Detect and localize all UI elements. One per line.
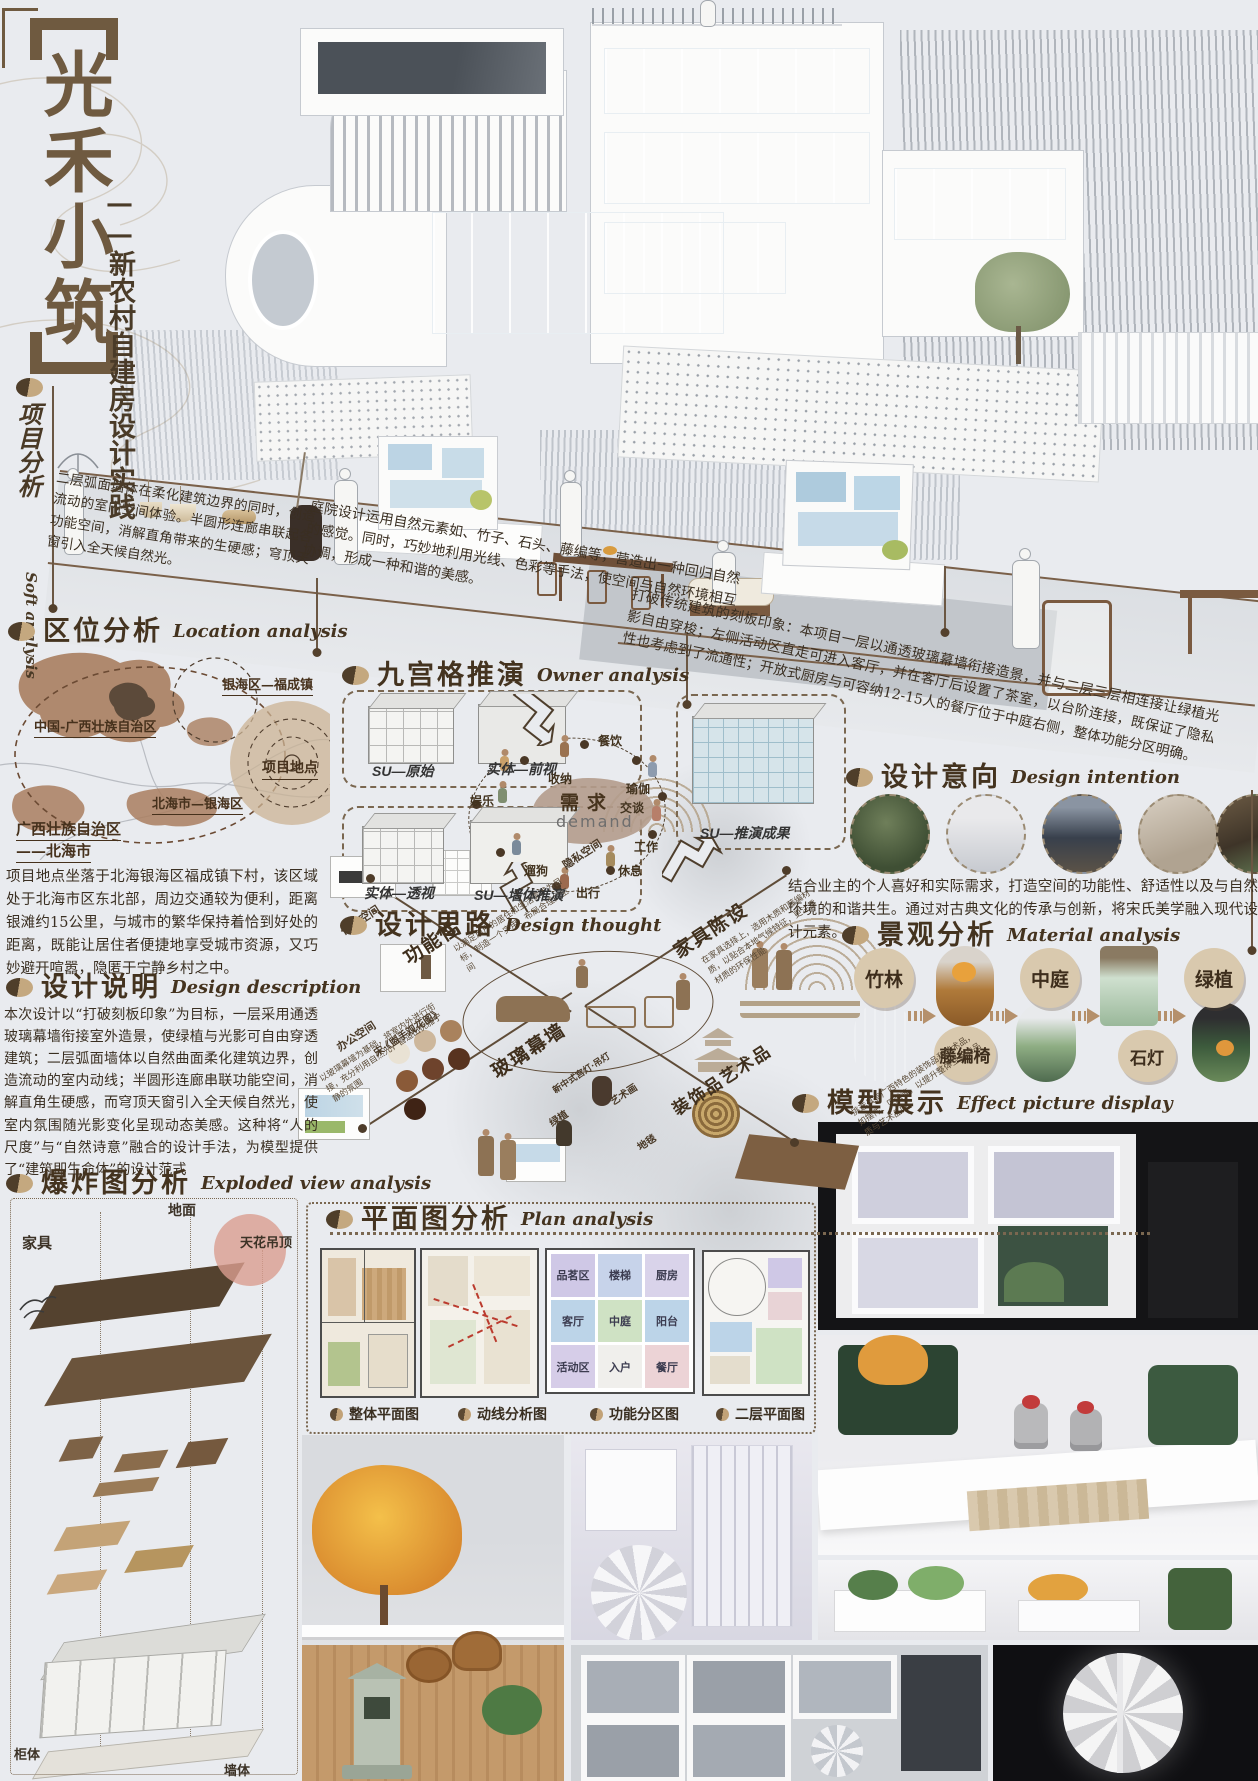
- section-bullet: [326, 1210, 353, 1229]
- intention-photo-bonsai: [850, 794, 930, 874]
- figurine: [606, 852, 615, 867]
- map-label-province-1: 广西壮族自治区: [16, 820, 121, 841]
- caption-solid-front: 实体—前视: [486, 762, 556, 776]
- legend-second-floor-plan: 二层平面图: [716, 1404, 805, 1424]
- model-photo-facade-dark: [818, 1122, 1258, 1330]
- material-label-text: 中庭: [1031, 965, 1069, 992]
- material-analysis-heading-cn: 景观分析: [877, 922, 997, 949]
- figurine: [560, 742, 569, 757]
- design-intention-heading-en: Design intention: [1011, 769, 1180, 787]
- tree-trunk: [1016, 326, 1021, 364]
- exploded-label-ceiling: 天花吊顶: [240, 1232, 292, 1251]
- reading-figure: [1012, 548, 1038, 648]
- poster-subtitle: ——新农村自建房设计实践: [104, 188, 135, 608]
- plan-analysis-heading: 平面图分析 Plan analysis: [326, 1206, 653, 1233]
- section-bullet: [842, 926, 869, 945]
- activity-chat: 交谈: [620, 799, 644, 816]
- section-bullet: [6, 978, 33, 997]
- tower-glass-1: [604, 48, 870, 114]
- path-dot: [606, 866, 615, 875]
- flow-arrow: [990, 1008, 1020, 1024]
- material-analysis-heading-en: Material analysis: [1007, 927, 1180, 945]
- legend-dot: [330, 1408, 343, 1421]
- material-label-atrium: 中庭: [1020, 948, 1080, 1008]
- outer-corner-bracket: [2, 8, 38, 11]
- legend-zoning-plan: 功能分区图: [590, 1404, 679, 1424]
- figurine: [512, 840, 521, 855]
- path-dot: [496, 848, 505, 857]
- material-photo-bamboo: [854, 1002, 912, 1082]
- activity-travel: 出行: [576, 884, 600, 901]
- exploded-label-cabinet: 柜体: [14, 1744, 40, 1763]
- white-fence: [1078, 332, 1258, 424]
- legend-label: 动线分析图: [477, 1404, 547, 1424]
- sofa-silhouette: [496, 996, 570, 1022]
- section-bullet: [6, 1174, 33, 1193]
- material-label-stone-lamp: 石灯: [1118, 1030, 1176, 1082]
- legend-overall-plan: 整体平面图: [330, 1404, 419, 1424]
- flow-arrow: [908, 1008, 938, 1024]
- exploded-label-wall: 墙体: [224, 1760, 250, 1779]
- demand-label-cn: 需求: [560, 788, 614, 815]
- flow-arrow: [1072, 1008, 1102, 1024]
- location-heading: 区位分析 Location analysis: [8, 618, 348, 645]
- map-label-province-2: ——北海市: [16, 842, 91, 863]
- activity-yoga: 瑜伽: [626, 780, 650, 797]
- material-photo-stone-lantern: [1100, 946, 1158, 1026]
- intention-photo-white-house: [946, 794, 1026, 874]
- arc-motif-bars: [740, 994, 860, 1018]
- intention-photo-chinese-house: [1042, 794, 1122, 874]
- activity-rest: 休息: [618, 862, 642, 879]
- room-balcony: 阳台: [645, 1300, 689, 1343]
- room-dining: 餐厅: [645, 1345, 689, 1388]
- legend-dot: [458, 1408, 471, 1421]
- exploded-heading: 爆炸图分析 Exploded view analysis: [6, 1170, 431, 1197]
- material-label-greenery: 绿植: [1184, 948, 1244, 1008]
- caption-su-result: SU—推演成果: [700, 826, 789, 840]
- room-kitchen: 厨房: [645, 1254, 689, 1297]
- path-dot: [632, 756, 641, 765]
- palette-dot: [448, 1048, 470, 1070]
- grid-study-heading: 九宫格推演 Owner analysis: [342, 662, 689, 689]
- su-original-model: [368, 706, 454, 764]
- section-bullet: [8, 622, 35, 641]
- map-label-china: 中国-广西壮族自治区: [34, 720, 156, 738]
- design-intention-heading-cn: 设计意向: [881, 764, 1001, 791]
- block-arrow-up-right: [662, 836, 726, 888]
- location-heading-cn: 区位分析: [43, 618, 163, 645]
- oval-window: [248, 230, 318, 330]
- caption-su-original: SU—原始: [372, 764, 433, 778]
- design-description-body: 本次设计以“打破刻板印象”为目标，一层采用通透玻璃幕墙衔接室外造景，使绿植与光影…: [4, 1004, 318, 1181]
- palette-dot: [404, 1098, 426, 1120]
- spoke-dot: [358, 1124, 367, 1133]
- spoke-dot: [790, 1138, 799, 1147]
- section-bullet: [342, 666, 369, 685]
- location-body: 项目地点坐落于北海银海区福成镇下村，该区域处于北海市区东北部，周边交通较为便利，…: [6, 866, 318, 981]
- material-label-bamboo: 竹林: [854, 948, 914, 1008]
- figurine: [498, 788, 507, 803]
- poster-title: 光禾小筑: [36, 48, 110, 358]
- design-thought-heading: 设计思路 Design thought: [340, 912, 661, 939]
- material-label-text: 石灯: [1130, 1044, 1164, 1069]
- model-photo-facade-grid: [571, 1645, 988, 1781]
- design-description-heading-en: Design description: [171, 979, 361, 997]
- legend-dot: [590, 1408, 603, 1421]
- activity-dining: 餐饮: [598, 732, 622, 749]
- map-label-site: 项目地点: [262, 760, 318, 780]
- room-atrium: 中庭: [598, 1300, 642, 1343]
- outer-corner-bracket: [2, 8, 5, 68]
- map-label-district: 北海市—银海区: [152, 797, 243, 815]
- path-dot: [658, 792, 667, 801]
- wood-table-right: [1180, 590, 1258, 598]
- room-entry: 入户: [598, 1345, 642, 1388]
- exploded-heading-cn: 爆炸图分析: [41, 1170, 191, 1197]
- model-display-heading-en: Effect picture display: [957, 1095, 1173, 1113]
- title-bracket-bottom: [30, 332, 42, 374]
- hanging-lamp-sketch: [592, 1076, 612, 1106]
- chair-silhouette: [644, 996, 674, 1028]
- section-bullet: [792, 1094, 819, 1113]
- exploded-frame: [10, 1198, 298, 1775]
- roof-railing: [592, 8, 842, 26]
- activity-entertainment: 娱乐: [470, 792, 494, 809]
- figurine: [648, 762, 657, 777]
- section-bullet: [340, 916, 367, 935]
- location-heading-en: Location analysis: [173, 623, 348, 641]
- room-stairs: 楼梯: [598, 1254, 642, 1297]
- model-photo-lion-courtyard: [818, 1335, 1258, 1555]
- top-box-window: [318, 42, 546, 94]
- tree: [975, 252, 1070, 332]
- plan-analysis-heading-en: Plan analysis: [521, 1211, 653, 1229]
- plan-circulation: [420, 1248, 539, 1398]
- model-photo-courtyard: [302, 1435, 564, 1781]
- side-section-label-cn: 项目分析: [14, 402, 40, 572]
- legend-label: 功能分区图: [609, 1404, 679, 1424]
- person-silhouette: [478, 1136, 494, 1176]
- room-living: 客厅: [551, 1300, 595, 1343]
- su-result-model: [692, 716, 814, 804]
- legend-dot: [716, 1408, 729, 1421]
- palette-dot: [396, 1070, 418, 1092]
- material-analysis-heading: 景观分析 Material analysis: [842, 922, 1180, 949]
- person-silhouette: [676, 980, 690, 1010]
- legend-circulation-plan: 动线分析图: [458, 1404, 547, 1424]
- legend-label: 二层平面图: [735, 1404, 805, 1424]
- map-label-town: 银海区—福成镇: [222, 678, 313, 696]
- activity-storage: 收纳: [548, 770, 572, 787]
- model-photo-stairwell: [571, 1435, 812, 1640]
- grid-study-heading-cn: 九宫格推演: [377, 662, 527, 689]
- intention-photo-beige-model: [1138, 794, 1218, 874]
- exploded-label-furniture: 家具: [22, 1232, 52, 1253]
- tea-table-silhouette: [586, 1006, 636, 1028]
- material-label-text: 绿植: [1195, 965, 1233, 992]
- design-description-heading: 设计说明 Design description: [6, 974, 361, 1001]
- activity-dog-walking: 遛狗: [524, 862, 548, 879]
- room-tea-area: 品茗区: [551, 1254, 595, 1297]
- legend-label: 整体平面图: [349, 1404, 419, 1424]
- palette-dot: [422, 1058, 444, 1080]
- material-photo-rattan: [936, 946, 994, 1026]
- person-silhouette: [500, 1140, 516, 1180]
- figurine: [652, 806, 661, 821]
- divider-line: [944, 566, 946, 632]
- section-bullet: [846, 768, 873, 787]
- model-photo-terrace: [818, 1560, 1258, 1640]
- path-dot: [580, 740, 589, 749]
- material-photo-rock: [1016, 1002, 1076, 1082]
- design-intention-heading: 设计意向 Design intention: [846, 764, 1180, 791]
- plan-zoning: 品茗区 楼梯 厨房 客厅 中庭 阳台 活动区 入户 餐厅: [545, 1248, 695, 1394]
- flower-accent: [1216, 1040, 1234, 1056]
- model-display-heading: 模型展示 Effect picture display: [792, 1090, 1173, 1117]
- spoke-dot: [782, 866, 791, 875]
- spoke-dot: [366, 874, 375, 883]
- tower-glass-3: [604, 222, 786, 294]
- annex-glass: [894, 168, 1066, 240]
- material-label-text: 竹林: [865, 965, 903, 992]
- plan-analysis-heading-cn: 平面图分析: [361, 1206, 511, 1233]
- caption-solid-perspective: 实体—透视: [364, 886, 434, 900]
- design-thought-heading-cn: 设计思路: [375, 912, 495, 939]
- wood-table-leg: [1188, 598, 1192, 654]
- exploded-heading-en: Exploded view analysis: [201, 1175, 431, 1193]
- flower-accent: [952, 962, 976, 982]
- caption-su-wall: SU—墙体推演: [474, 888, 563, 902]
- model-photo-spiral-stair-dark: [993, 1645, 1258, 1781]
- flow-arrow: [1158, 1008, 1188, 1024]
- room-activity: 活动区: [551, 1345, 595, 1388]
- section-bullet: [16, 378, 43, 397]
- presentation-board: 光禾小筑 ——新农村自建房设计实践 项目分析 Soft analysis 二层弧…: [0, 0, 1258, 1781]
- tower-glass-2: [604, 132, 870, 204]
- roof-figure: [700, 0, 714, 26]
- title-bracket-top: [30, 18, 118, 30]
- block-arrow-down: [498, 694, 562, 746]
- person-silhouette: [776, 950, 792, 990]
- exploded-label-ground: 地面: [168, 1200, 196, 1220]
- design-thought-heading-en: Design thought: [505, 917, 661, 935]
- grid-study-heading-en: Owner analysis: [537, 667, 689, 685]
- person-silhouette: [576, 966, 588, 988]
- design-description-heading-cn: 设计说明: [41, 974, 161, 1001]
- plan-overall: [320, 1248, 416, 1398]
- plan-second-floor: [702, 1250, 810, 1396]
- model-display-heading-cn: 模型展示: [827, 1090, 947, 1117]
- activity-work: 工作: [634, 838, 658, 855]
